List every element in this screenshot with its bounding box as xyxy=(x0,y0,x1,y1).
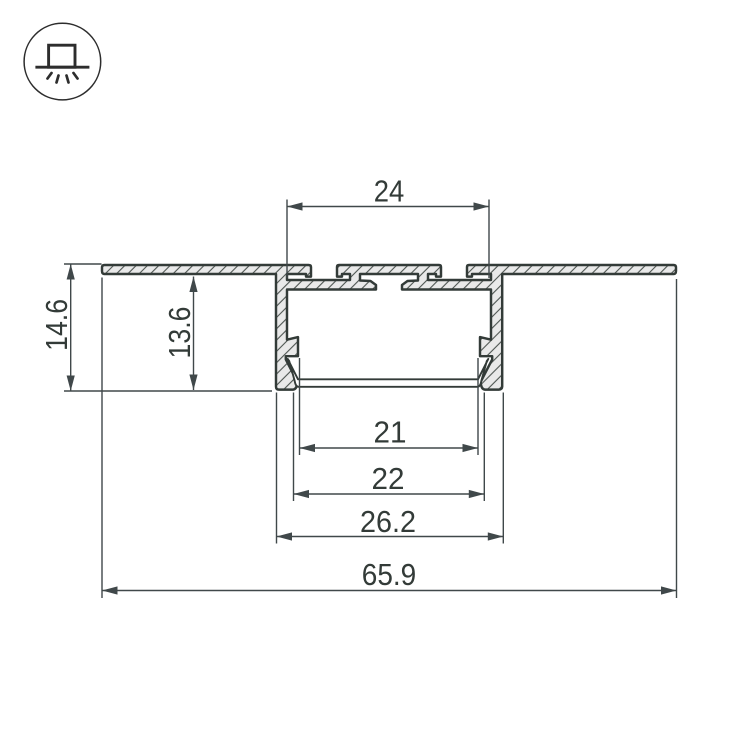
svg-text:65.9: 65.9 xyxy=(362,558,417,592)
svg-text:13.6: 13.6 xyxy=(163,307,197,359)
svg-text:14.6: 14.6 xyxy=(40,299,74,351)
svg-text:21: 21 xyxy=(374,415,407,449)
svg-text:26.2: 26.2 xyxy=(360,505,416,539)
svg-text:24: 24 xyxy=(374,174,405,208)
svg-text:22: 22 xyxy=(372,462,405,496)
